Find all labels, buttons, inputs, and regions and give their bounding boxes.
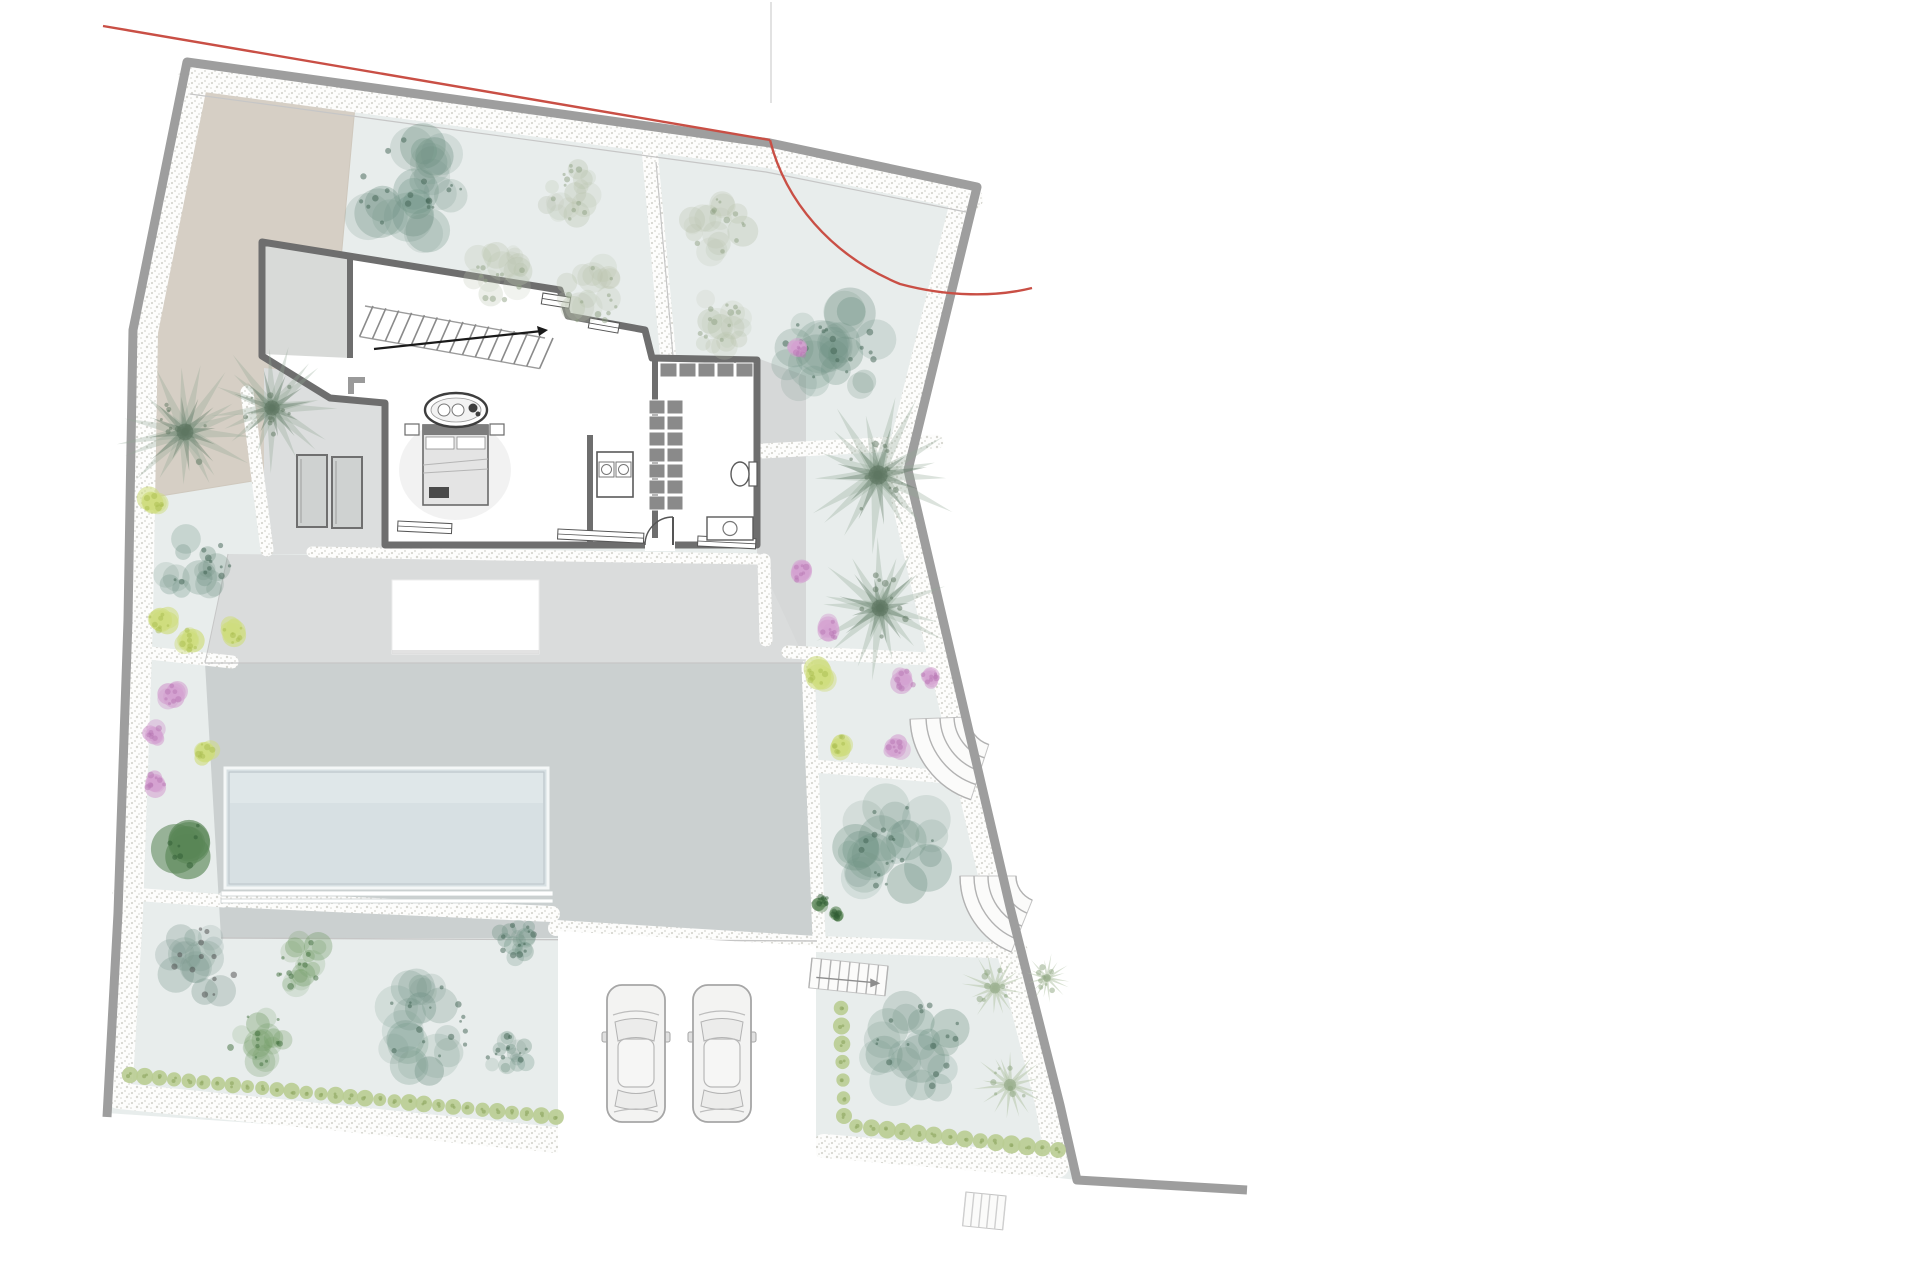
bed bbox=[423, 425, 488, 505]
nightstand bbox=[490, 424, 504, 435]
window bbox=[398, 521, 452, 534]
site-plan bbox=[0, 0, 1920, 1280]
vanity-sink bbox=[707, 517, 753, 540]
car bbox=[688, 985, 756, 1122]
parking-area bbox=[558, 931, 816, 1245]
gravel-path bbox=[764, 560, 766, 640]
gravel-path bbox=[312, 552, 757, 559]
site-plan-canvas bbox=[0, 0, 1920, 1280]
toilet bbox=[731, 462, 757, 486]
garage bbox=[262, 242, 350, 358]
swimming-pool bbox=[221, 768, 553, 903]
pergola-shadow bbox=[392, 650, 539, 654]
pool-coping bbox=[221, 899, 553, 903]
planter bbox=[332, 457, 362, 528]
planter bbox=[297, 455, 327, 527]
pergola-roof bbox=[392, 580, 539, 654]
outdoor-stair bbox=[963, 1192, 1006, 1230]
sofa bbox=[348, 377, 354, 394]
nightstand bbox=[405, 424, 419, 435]
driveway bbox=[558, 931, 816, 1245]
car bbox=[602, 985, 670, 1122]
pool-highlight bbox=[230, 773, 543, 803]
laundry-unit bbox=[597, 452, 633, 497]
walk-in-closet bbox=[660, 363, 753, 377]
gravel-path bbox=[119, 893, 224, 901]
pool-coping bbox=[221, 891, 553, 896]
bathtub bbox=[425, 393, 487, 427]
pergola bbox=[392, 580, 539, 654]
